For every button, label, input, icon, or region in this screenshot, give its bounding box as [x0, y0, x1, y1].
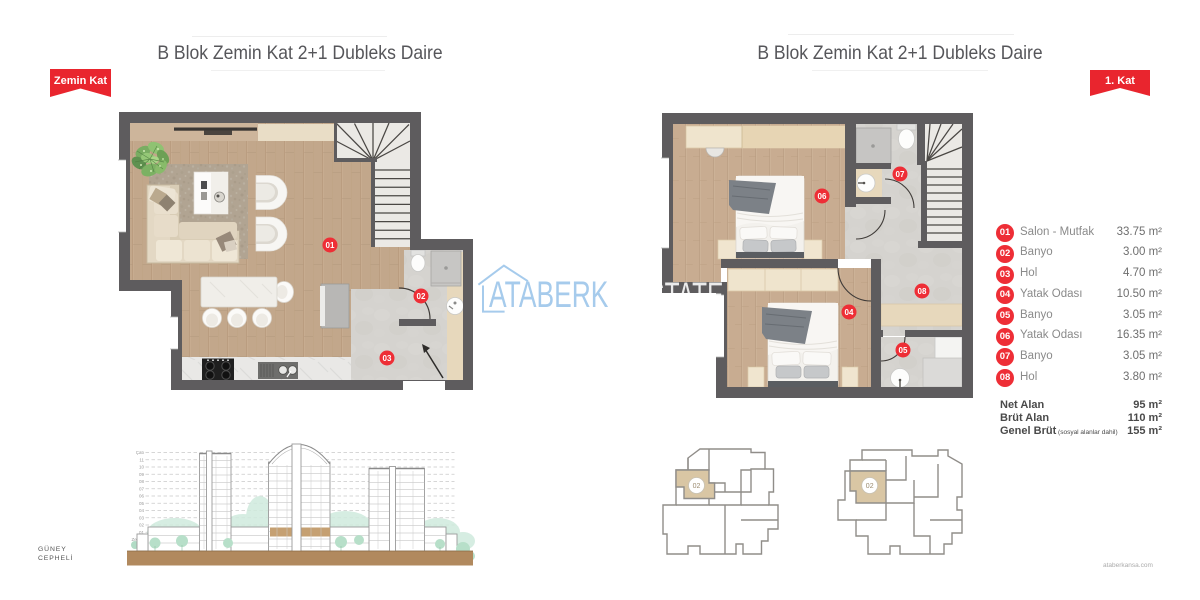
- svg-text:04: 04: [139, 508, 145, 513]
- svg-text:03: 03: [383, 354, 392, 363]
- svg-text:02: 02: [139, 523, 145, 528]
- svg-text:09: 09: [139, 472, 145, 477]
- svg-text:02: 02: [866, 483, 874, 490]
- svg-text:07: 07: [139, 486, 145, 491]
- svg-text:03: 03: [139, 515, 145, 520]
- svg-text:10: 10: [139, 465, 145, 470]
- svg-text:01: 01: [326, 241, 335, 250]
- svg-text:08: 08: [918, 287, 927, 296]
- svg-text:05: 05: [139, 501, 145, 506]
- svg-text:02: 02: [693, 483, 701, 490]
- svg-text:08: 08: [139, 479, 145, 484]
- svg-text:05: 05: [899, 346, 908, 355]
- svg-text:Zemin Kat: Zemin Kat: [54, 75, 108, 87]
- svg-text:04: 04: [845, 308, 854, 317]
- svg-text:1. Kat: 1. Kat: [1105, 75, 1135, 87]
- svg-text:06: 06: [139, 494, 145, 499]
- svg-text:07: 07: [896, 170, 905, 179]
- svg-text:02: 02: [417, 292, 426, 301]
- svg-text:11: 11: [139, 457, 144, 462]
- svg-text:06: 06: [818, 192, 827, 201]
- svg-text:Çatı: Çatı: [136, 450, 144, 455]
